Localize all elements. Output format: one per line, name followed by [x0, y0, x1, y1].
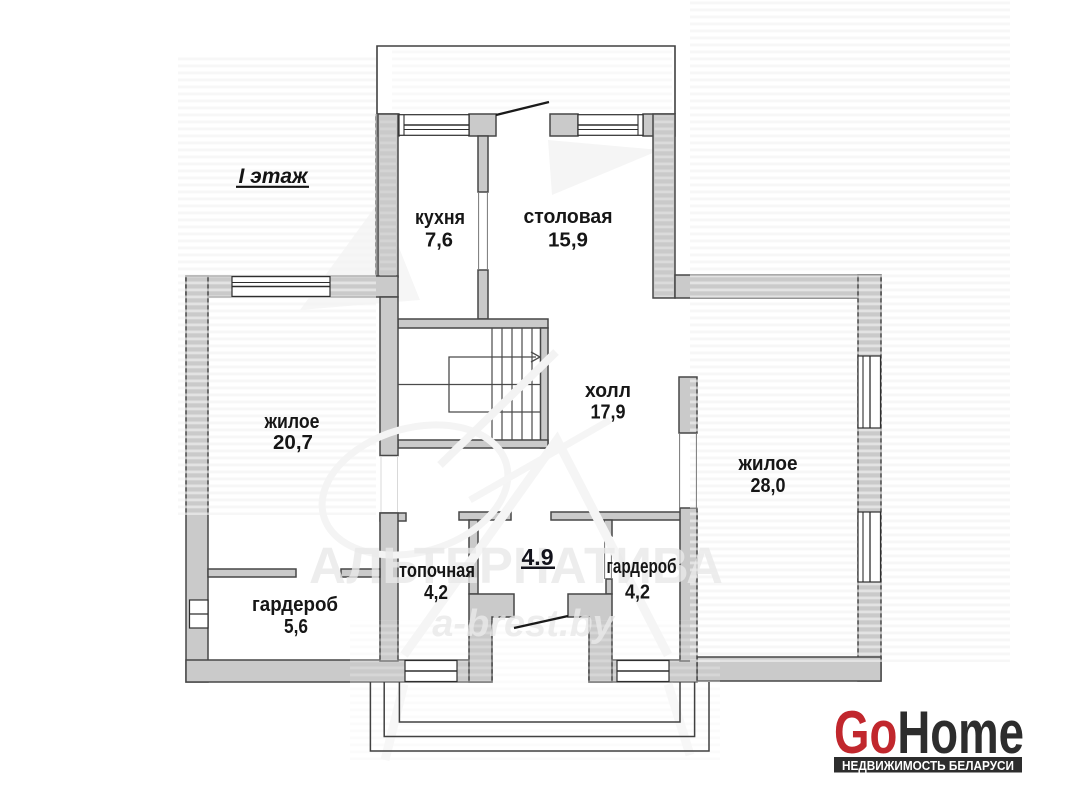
- svg-text:жилое: жилое: [264, 411, 320, 433]
- svg-text:4.9: 4.9: [522, 544, 554, 570]
- svg-text:7,6: 7,6: [425, 230, 453, 252]
- svg-text:столовая: столовая: [524, 206, 613, 228]
- svg-text:4,2: 4,2: [424, 582, 448, 604]
- svg-text:GoHome: GoHome: [834, 699, 1024, 766]
- svg-text:28,0: 28,0: [751, 475, 786, 497]
- svg-text:гардероб: гардероб: [607, 556, 677, 578]
- svg-text:гардероб: гардероб: [252, 594, 338, 616]
- svg-text:кухня: кухня: [415, 207, 465, 229]
- svg-text:жилое: жилое: [738, 453, 798, 475]
- svg-text:17,9: 17,9: [591, 402, 626, 424]
- svg-text:холл: холл: [585, 380, 631, 402]
- svg-text:I этаж: I этаж: [238, 165, 309, 188]
- svg-text:20,7: 20,7: [273, 432, 313, 454]
- svg-text:4,2: 4,2: [625, 582, 650, 604]
- svg-text:a-brest.by: a-brest.by: [432, 603, 615, 645]
- svg-text:топочная: топочная: [399, 560, 475, 582]
- svg-text:5,6: 5,6: [284, 616, 308, 638]
- svg-text:15,9: 15,9: [548, 230, 588, 252]
- svg-text:НЕДВИЖИМОСТЬ БЕЛАРУСИ: НЕДВИЖИМОСТЬ БЕЛАРУСИ: [842, 759, 1014, 773]
